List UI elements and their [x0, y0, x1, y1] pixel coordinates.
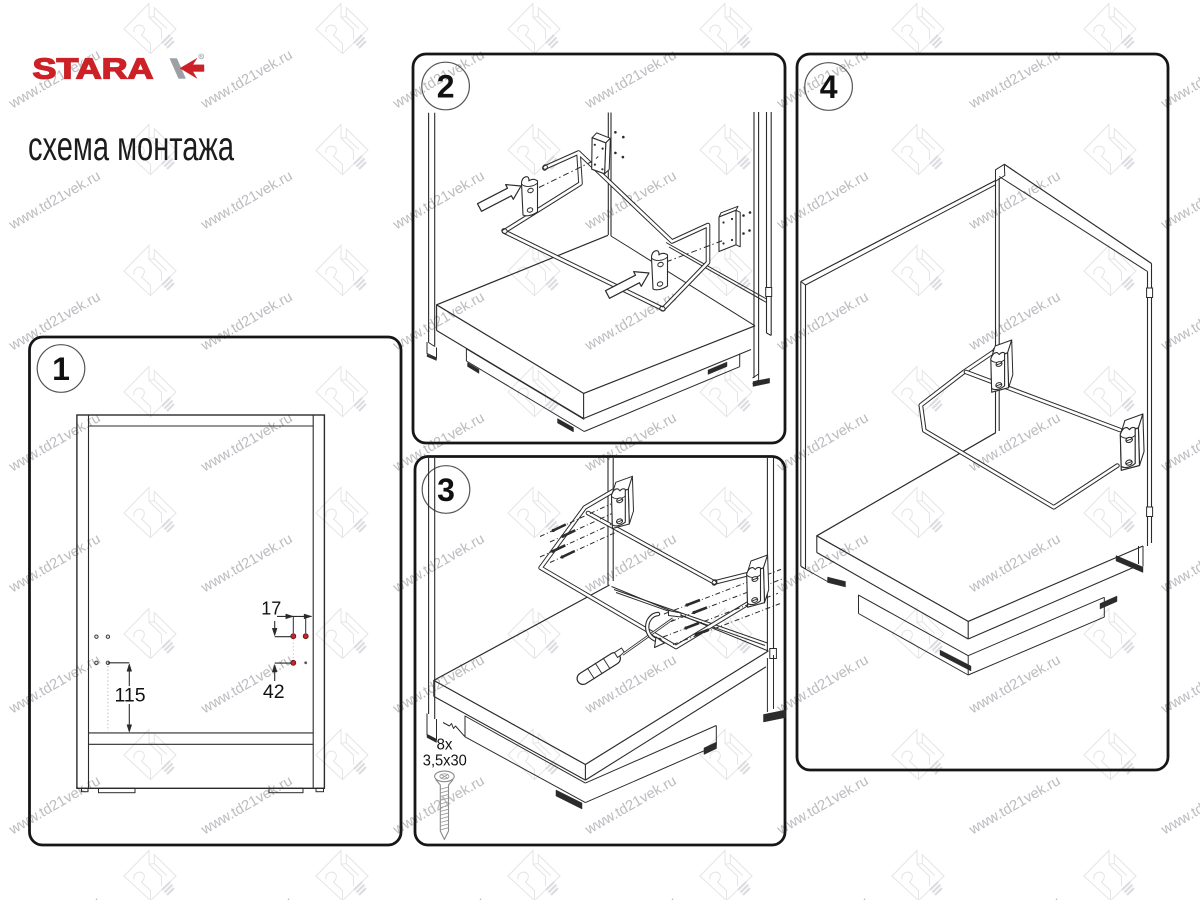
svg-text:1: 1	[52, 351, 70, 387]
svg-text:R: R	[200, 54, 203, 59]
svg-text:115: 115	[114, 685, 145, 707]
svg-text:8x: 8x	[437, 737, 453, 754]
svg-text:2: 2	[437, 69, 455, 105]
svg-text:3: 3	[437, 472, 455, 508]
svg-text:4: 4	[820, 69, 838, 105]
svg-text:3,5x30: 3,5x30	[423, 753, 467, 770]
svg-text:17: 17	[261, 599, 281, 619]
svg-text:STARA: STARA	[33, 53, 154, 85]
svg-text:42: 42	[263, 681, 285, 703]
svg-text:схема монтажа: схема монтажа	[28, 123, 234, 169]
